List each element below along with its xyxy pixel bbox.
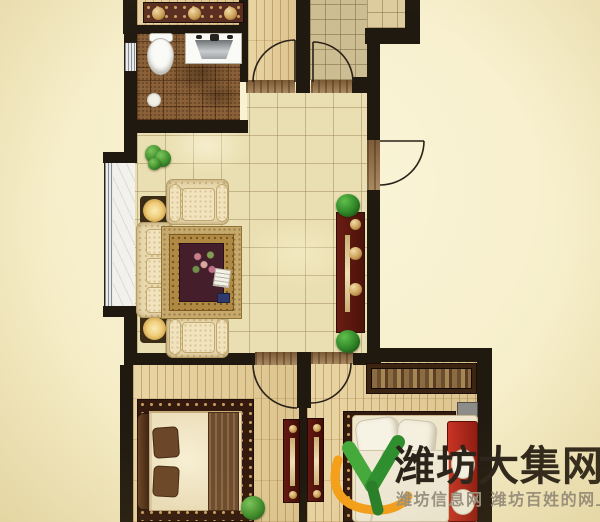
bedroom1-door-arc (253, 364, 297, 408)
kitchen-door-arc (313, 42, 353, 82)
watermark-slogan: 潍坊信息网 潍坊百姓的网上大集 (396, 492, 600, 508)
watermark-brand: 潍坊大集网 (394, 446, 600, 487)
floor-plan: 潍坊大集网 潍坊信息网 潍坊百姓的网上大集 (0, 0, 600, 522)
bedroom2-door-arc (311, 363, 351, 403)
logo-green-tail (372, 486, 378, 510)
entry-door-arc (380, 141, 424, 185)
corridor-door-arc (253, 40, 295, 82)
